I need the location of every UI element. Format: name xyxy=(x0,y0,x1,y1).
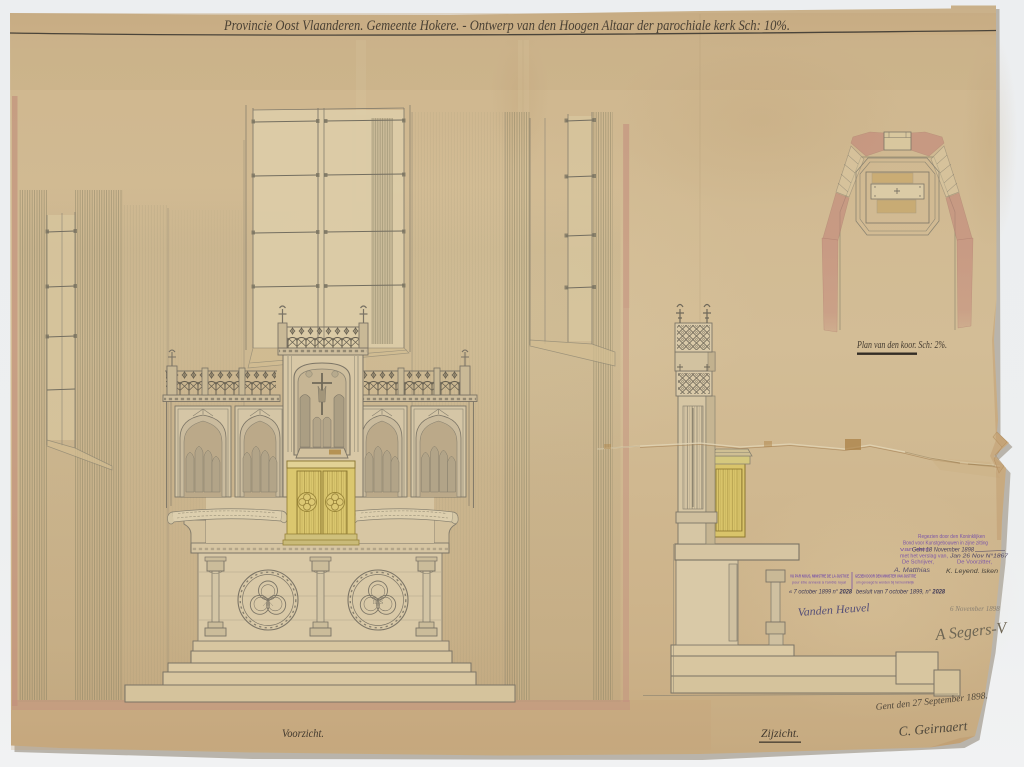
svg-text:om gevoegd te worden bij het k: om gevoegd te worden bij het koninklijk xyxy=(856,581,914,585)
svg-text:IHS: IHS xyxy=(373,599,384,606)
svg-text:K. Leyend. lsken: K. Leyend. lsken xyxy=(946,568,998,575)
svg-text:Voorzicht.: Voorzicht. xyxy=(282,726,324,740)
svg-text:6 November 1898: 6 November 1898 xyxy=(950,605,1000,613)
svg-text:De Schrijver,: De Schrijver, xyxy=(902,560,934,566)
svg-text:VU PAR NOUS, MINISTRE DE LA JU: VU PAR NOUS, MINISTRE DE LA JUSTICE xyxy=(790,574,849,579)
svg-text:GEZIEN DOOR DEN MINISTER VAN J: GEZIEN DOOR DEN MINISTER VAN JUSTITIE xyxy=(855,574,916,579)
svg-text:Bond voor Kunstgebouwen in zij: Bond voor Kunstgebouwen in zijne zitting xyxy=(903,541,988,547)
svg-text:« 7 october 1899 n° 2028: « 7 october 1899 n° 2028 xyxy=(789,589,853,596)
svg-text:besluit van 7 october 1899, n°: besluit van 7 october 1899, n° 2028 xyxy=(856,589,946,596)
svg-text:Provincie Oost Vlaanderen. Ge: Provincie Oost Vlaanderen. Gemeente Hoke… xyxy=(223,18,790,34)
svg-text:Zijzicht.: Zijzicht. xyxy=(761,726,799,740)
svg-text:pour être annexé à l'arrêté ro: pour être annexé à l'arrêté royal xyxy=(792,581,846,585)
svg-text:Regezien door den Koninklijken: Regezien door den Koninklijken xyxy=(918,534,985,540)
svg-text:De Voorzitter,: De Voorzitter, xyxy=(957,560,992,566)
svg-text:Plan van den koor. Sch: 2%.: Plan van den koor. Sch: 2%. xyxy=(856,340,947,351)
